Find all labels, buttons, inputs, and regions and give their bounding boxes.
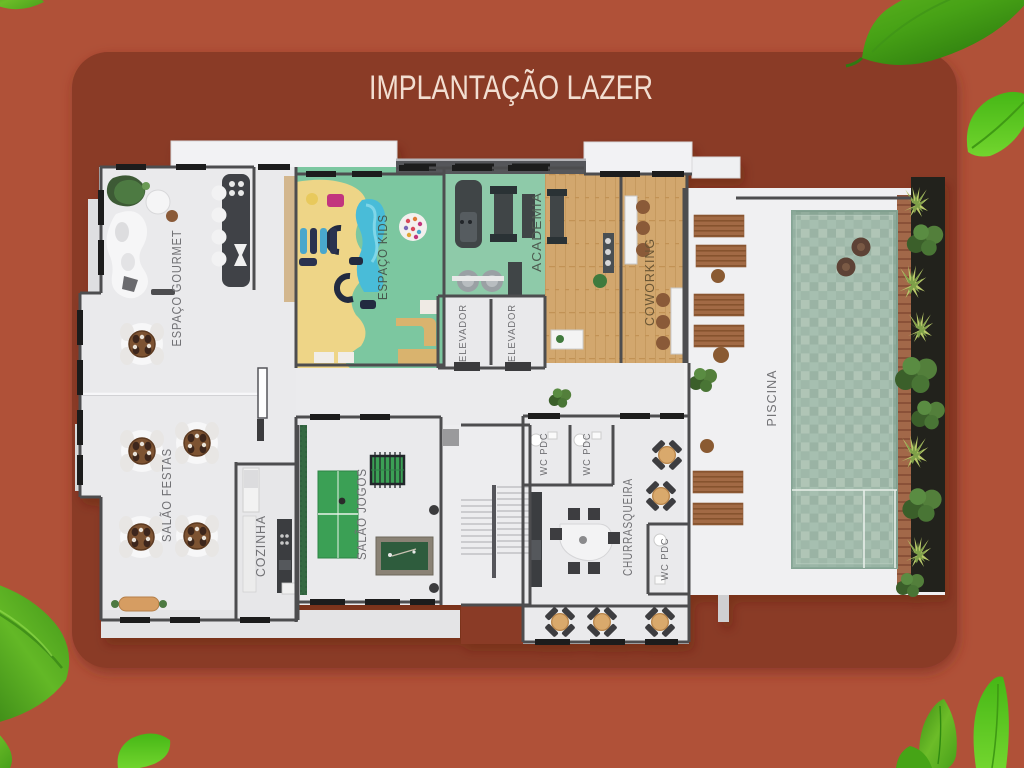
- svg-text:CHURRASQUEIRA: CHURRASQUEIRA: [621, 478, 635, 576]
- svg-text:SALÃO JOGOS: SALÃO JOGOS: [355, 468, 369, 560]
- svg-text:COWORKING: COWORKING: [643, 238, 657, 326]
- svg-text:ACADEMIA: ACADEMIA: [530, 192, 544, 272]
- svg-text:SALÃO FESTAS: SALÃO FESTAS: [160, 448, 174, 542]
- svg-text:PISCINA: PISCINA: [765, 370, 779, 427]
- svg-text:WC PDC: WC PDC: [659, 538, 671, 581]
- svg-text:ELEVADOR: ELEVADOR: [457, 304, 469, 362]
- svg-text:ELEVADOR: ELEVADOR: [506, 304, 518, 362]
- svg-text:ESPAÇO KIDS: ESPAÇO KIDS: [376, 214, 390, 300]
- svg-text:WC PDC: WC PDC: [538, 433, 550, 476]
- svg-text:WC PDC: WC PDC: [581, 433, 593, 476]
- svg-text:ESPAÇO GOURMET: ESPAÇO GOURMET: [170, 230, 184, 347]
- svg-text:IMPLANTAÇÃO LAZER: IMPLANTAÇÃO LAZER: [369, 69, 653, 107]
- svg-text:COZINHA: COZINHA: [254, 515, 268, 577]
